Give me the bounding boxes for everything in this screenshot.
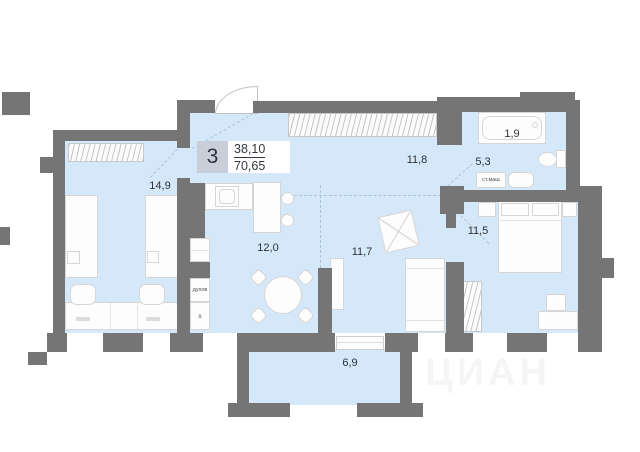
room-count-badge: 3 (197, 141, 228, 173)
wall (228, 403, 290, 417)
wall (53, 130, 65, 352)
wall-stub (28, 352, 47, 365)
wardrobe (461, 281, 482, 332)
room-label-bathroom: 5,3 (461, 156, 505, 169)
sofa-line (406, 268, 444, 269)
wall (437, 97, 462, 145)
wall (190, 183, 205, 238)
wall (170, 333, 203, 352)
appliance-label: х (189, 313, 211, 320)
living-area-value: 38,10 (234, 141, 265, 158)
tv-stand (538, 311, 578, 330)
nightstand (478, 202, 496, 217)
chair (70, 284, 96, 305)
wall-stub (0, 227, 10, 245)
room-balcony-floor (249, 348, 400, 405)
room-label-hallway: 11,8 (395, 154, 439, 167)
room-label-balcony: 6,9 (328, 357, 372, 370)
wall-stub (2, 92, 30, 115)
washing-machine-label: ст.маш (476, 177, 506, 183)
wall (103, 333, 143, 352)
stool (281, 192, 294, 205)
wall (253, 101, 460, 113)
wall (507, 333, 547, 352)
wall (177, 178, 190, 352)
door-opening-floor (177, 148, 190, 178)
dresser (546, 294, 566, 311)
room-label-living: 11,7 (340, 246, 384, 259)
shelf (330, 258, 344, 310)
wall (237, 333, 335, 352)
room-label-bath-zone: 1,9 (490, 128, 534, 141)
wardrobe (288, 113, 437, 137)
zone-divider-line (320, 185, 321, 268)
desk (65, 302, 180, 330)
pillow (501, 203, 529, 216)
balcony-door-line (337, 342, 383, 343)
wall (53, 130, 190, 141)
toilet-tank (556, 150, 566, 168)
desk-mark (76, 317, 90, 321)
room-label-master-bedroom: 11,5 (456, 225, 500, 238)
dining-table (264, 276, 302, 314)
desk-divider (137, 303, 138, 329)
blanket-line (499, 220, 561, 221)
floor-plan: ЦИАН духов х ст.маш (0, 0, 640, 452)
wall (446, 214, 456, 228)
wall (177, 100, 190, 148)
wall (237, 348, 249, 408)
desk-divider (110, 303, 111, 329)
fridge-divider (191, 250, 209, 251)
watermark: ЦИАН (425, 352, 585, 398)
nightstand (562, 202, 577, 217)
desk-mark (146, 317, 160, 321)
sofa-line (406, 320, 444, 321)
pillow (532, 203, 559, 216)
wall (400, 348, 412, 408)
wall (440, 186, 464, 214)
bar-table (253, 182, 281, 233)
entrance-door-arc (215, 86, 258, 114)
wall (445, 333, 473, 352)
wall (190, 262, 210, 278)
sink-basin (219, 189, 235, 204)
single-bed (65, 195, 98, 278)
wardrobe (68, 143, 144, 162)
balcony-door (336, 336, 384, 350)
toilet-bowl (538, 152, 557, 167)
wall (40, 157, 53, 173)
pillow (147, 251, 159, 263)
stool (281, 214, 294, 227)
wall (578, 186, 602, 352)
area-legend: 38,10 70,65 (228, 141, 290, 173)
wall (47, 333, 67, 352)
single-bed (145, 195, 178, 278)
wall (458, 190, 578, 202)
oven-label: духов (189, 287, 211, 293)
sink (508, 172, 534, 188)
wall (602, 258, 614, 278)
wall (357, 403, 423, 417)
total-area-value: 70,65 (234, 159, 265, 173)
room-label-kitchen: 12,0 (246, 242, 290, 255)
wall (460, 97, 520, 112)
room-label-children-bedroom: 14,9 (138, 180, 182, 193)
chair (139, 284, 165, 305)
pillow (67, 251, 80, 264)
